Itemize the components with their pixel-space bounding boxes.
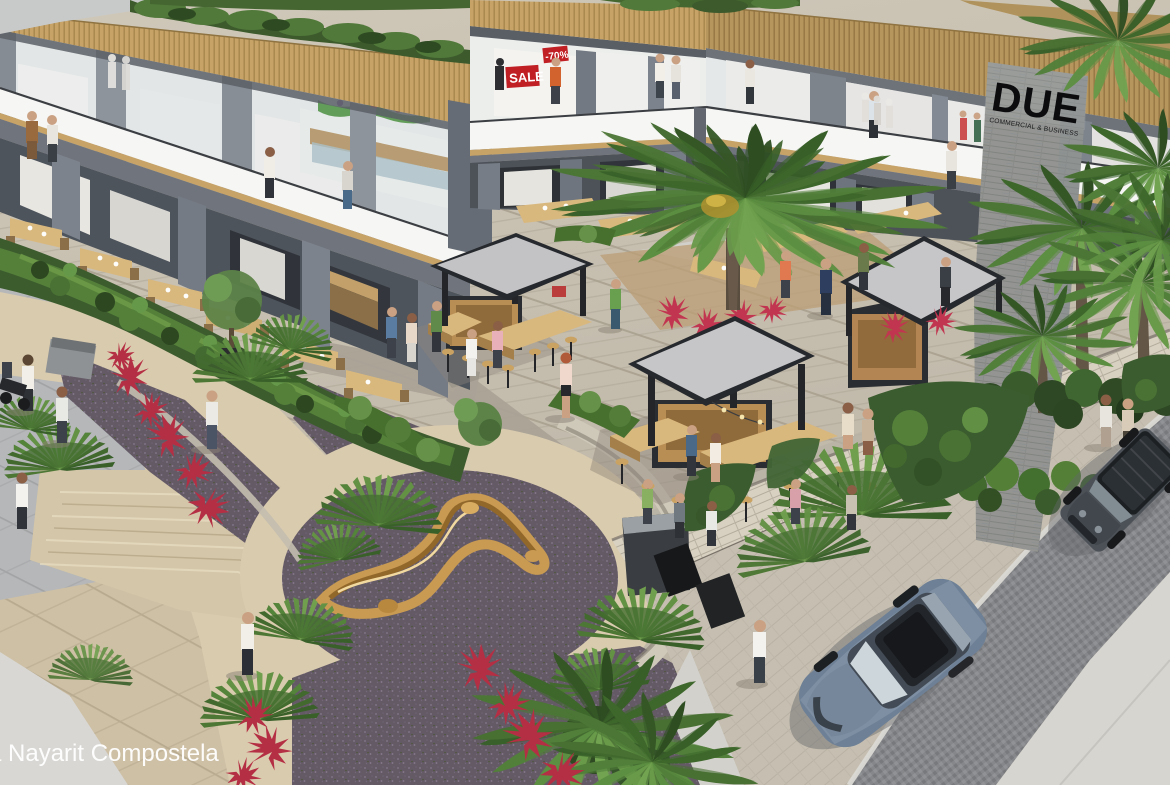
svg-text:SALE: SALE: [509, 68, 545, 85]
svg-text:a Nayarit Compostela: a Nayarit Compostela: [0, 740, 219, 767]
